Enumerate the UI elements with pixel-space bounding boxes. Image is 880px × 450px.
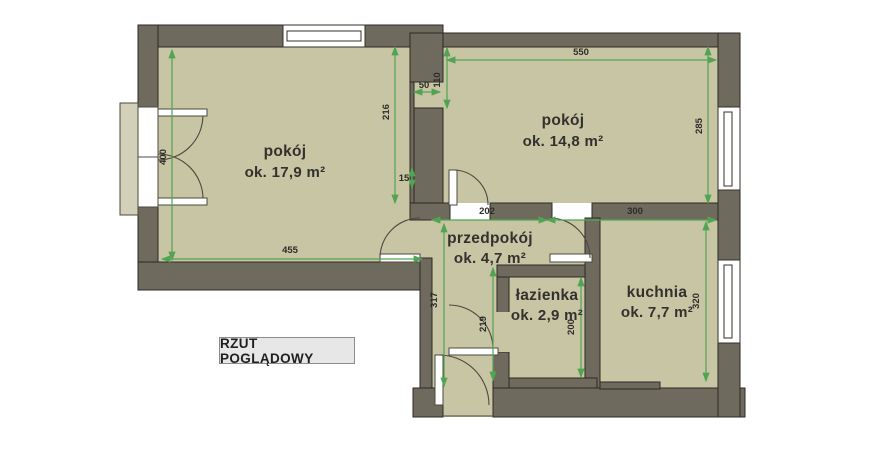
door-pokoj1-leaf — [380, 254, 420, 262]
dim-label-400: 400 — [158, 149, 169, 165]
lazienka-door-opening — [496, 312, 510, 352]
mid-wall-segment-a — [410, 203, 450, 220]
room-kuchnia-area: ok. 7,7 m² — [621, 304, 693, 321]
dim-label-110: 110 — [432, 72, 443, 87]
kuchnia-bottom-step — [600, 382, 660, 389]
dim-label-285: 285 — [694, 117, 705, 134]
balcony-door-leaf-bottom — [158, 198, 207, 205]
balcony-door-frame-top — [138, 107, 158, 157]
entrance-right-wall — [493, 352, 509, 388]
dim-label-216: 216 — [381, 104, 392, 120]
top-wall-right — [443, 33, 740, 47]
right-exterior-wall — [718, 33, 740, 417]
room-kuchnia-name: kuchnia — [627, 284, 688, 301]
room-pokoj-1-name: pokój — [264, 143, 307, 160]
floor-plan-page: 550 110 50 216 285 400 455 202 300 317 2… — [0, 0, 880, 450]
big-room-bottom-wall — [138, 262, 432, 290]
dim-label-50: 50 — [419, 80, 430, 91]
top-wall-left-a — [138, 25, 283, 47]
door-hall-leaf — [449, 348, 498, 355]
room-przedpokoj-name: przedpokój — [447, 230, 533, 247]
window-top-frame — [287, 31, 361, 41]
left-wall-upper — [138, 25, 158, 107]
door-pokoj2-leaf — [449, 170, 457, 205]
dim-label-317: 317 — [429, 292, 440, 308]
dim-label-300: 300 — [627, 206, 643, 217]
door-kuchnia-leaf — [550, 254, 592, 262]
dim-label-550: 550 — [573, 47, 589, 58]
balcony-door-leaf-top — [158, 109, 207, 116]
door-entry-leaf — [435, 355, 443, 405]
room-pokoj-2-area: ok. 14,8 m² — [523, 133, 604, 150]
plan-title-badge: RZUT POGLĄDOWY — [219, 337, 355, 364]
divider-lower — [414, 108, 443, 203]
entrance-floor — [443, 390, 493, 417]
dim-label-219: 219 — [478, 316, 489, 332]
room-pokoj-1-area: ok. 17,9 m² — [245, 164, 326, 181]
room-pokoj-2-name: pokój — [542, 112, 585, 129]
dim-label-15: 15 — [399, 173, 410, 184]
balcony-slab — [120, 103, 138, 215]
bottom-wall-right — [493, 388, 745, 417]
left-wall-lower — [138, 207, 158, 262]
room-przedpokoj-area: ok. 4,7 m² — [454, 250, 526, 267]
floor-plan-drawing: 550 110 50 216 285 400 455 202 300 317 2… — [0, 0, 880, 450]
mid-wall-segment-b — [490, 203, 552, 220]
dim-label-455: 455 — [282, 245, 299, 256]
room-lazienka-area: ok. 2,9 m² — [511, 307, 583, 324]
balcony-door-frame-bottom — [138, 157, 158, 207]
room-lazienka-name: łazienka — [516, 287, 579, 304]
window-right-upper-frame — [724, 112, 732, 186]
window-kuchnia-frame — [724, 265, 732, 338]
corridor-left-wall — [420, 258, 432, 388]
dim-label-202: 202 — [479, 206, 495, 217]
